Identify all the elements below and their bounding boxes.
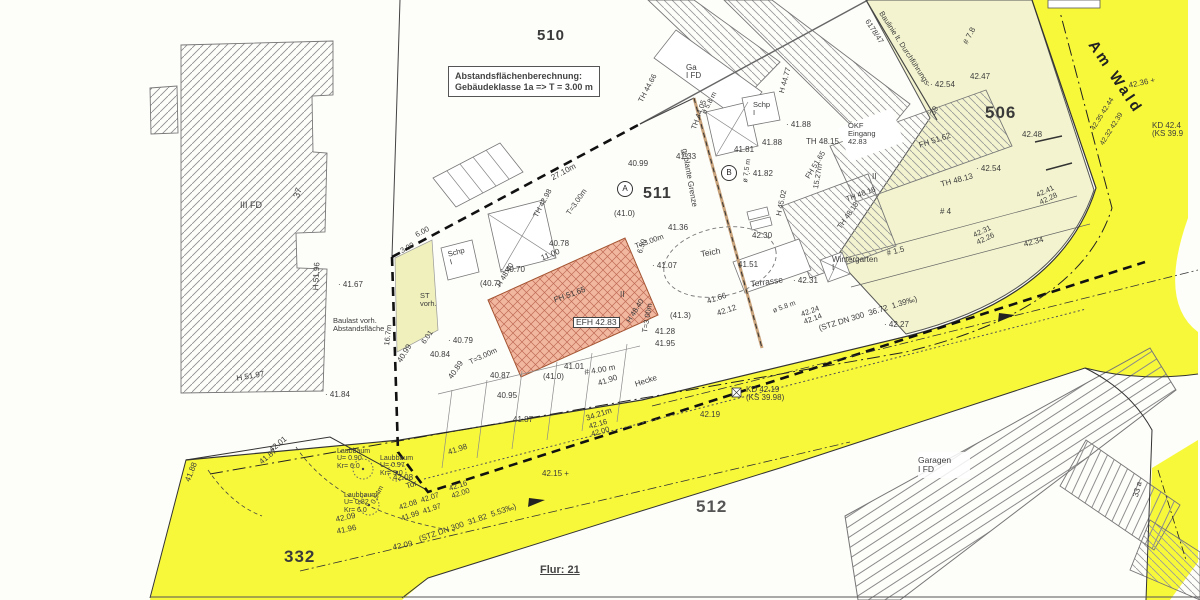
elev-4151: 41.51 [738, 261, 758, 269]
teich-label: Teich [700, 247, 721, 259]
elev-4215: 42.15 + [542, 470, 569, 478]
height-h5197: H 51.97 [236, 370, 265, 383]
elev-4188-b: 41.88 [762, 139, 782, 147]
elev-4182: · 41.82 [748, 170, 773, 178]
house-number-39: 39 [929, 105, 941, 117]
elev-410-paren-b: (41.0) [543, 373, 564, 381]
height-th4466: TH 44.66 [637, 73, 658, 104]
elev-413-paren: (41.3) [670, 312, 691, 320]
tree-laubbaum-2: Laubbaum U= 0.97 Kr= 5.0 [380, 455, 413, 477]
dim-78: # 7.8 [962, 26, 978, 46]
elev-4209-b: 42.09 [392, 540, 413, 552]
elev-4128: 41.28 [655, 328, 675, 336]
height-th4298: TH 42.98 [532, 188, 553, 219]
elev-4107: · 41.07 [652, 262, 677, 270]
dim-167m: 16.7m [383, 324, 393, 346]
elev-pair-4231-4226: 42.31 42.26 [972, 224, 996, 246]
building-schp-left: Schp I [447, 247, 468, 267]
elev-4230: 42.30 [752, 232, 772, 240]
dim-2710m: 27.10m [550, 162, 578, 182]
elev-4136: 41.36 [668, 224, 688, 232]
manhole-kd4219: KD 42.19 (KS 39.98) [746, 386, 784, 403]
elev-pair-4216-a: 42.16 42.00 [448, 479, 471, 500]
baulast-note: Baulast vorh. Abstandsfläche [333, 317, 384, 333]
elev-410-paren-a: (41.0) [614, 210, 635, 218]
house-number-37: 37 [292, 187, 304, 200]
building-ga-fd: Ga I FD [686, 64, 701, 81]
height-h4840-a: H 48.40 [495, 262, 516, 288]
elev-4188-c: 41.88 [184, 461, 199, 483]
height-h5196: H 51.96 [312, 262, 322, 290]
dim-1100: 11.00 [540, 248, 561, 263]
elev-4254-a: · 42.54 [930, 81, 955, 89]
dim-300: 3.00 [399, 241, 416, 255]
elev-4196-a: 41.96 [336, 524, 357, 536]
elev-4184: · 41.84 [325, 391, 350, 399]
elev-4181: 41.81 [734, 146, 754, 154]
elev-4195: 41.95 [655, 340, 675, 348]
manhole-kd424: KD 42.4 (KS 39.9 [1152, 122, 1183, 139]
height-th4813: TH 48.13 [940, 172, 974, 189]
wintergarten-label: Wintergarten I [832, 256, 878, 273]
elev-4084: 40.84 [430, 351, 450, 359]
dim-t300-c: T=3.00m [468, 346, 498, 366]
elev-4234: 42.34 [1023, 236, 1045, 249]
height-th4818: TH 48.18 [836, 201, 860, 231]
dim-t300-a: T=3.00m [565, 188, 589, 217]
survey-labels-layer: III FD37H 51.96H 51.97· 41.67· 41.84Baul… [0, 0, 1200, 600]
height-fh5165-bldg: FH 51.65 [553, 286, 587, 305]
elev-4248: 42.48 [1022, 131, 1042, 139]
tree-laubbaum-3: Laubbaum U= 0.82 Kr= 6.0 [344, 492, 377, 514]
dia-58m-south: ø 5.8 m [772, 300, 797, 315]
elev-4101: 41.01 [564, 363, 584, 371]
elev-4099-left: 40.99 [396, 343, 414, 364]
house-number-4: # 4 [940, 208, 951, 216]
baulinie-label: Baulinie lt. Durchführungs- [877, 10, 932, 88]
elev-4190: 41.90 [597, 374, 619, 388]
elev-4187-b: 41.87 [258, 447, 279, 466]
hecke-label: Hecke [634, 374, 658, 389]
height-h4477: H 44.77 [778, 67, 792, 94]
elev-4089: 40.89 [447, 360, 465, 381]
elev-4167: · 41.67 [338, 281, 363, 289]
elev-pair-4216-b: 42.16 42.00 [588, 418, 610, 438]
elev-4095: 40.95 [497, 392, 517, 400]
height-th4816: TH 48.16 [845, 185, 877, 203]
dim-601: 6.01 [420, 329, 435, 345]
dia-75m: ø 7.5 m [742, 158, 753, 183]
dim-600: 6.00 [414, 225, 431, 239]
elev-4198: 41.98 [447, 443, 469, 457]
storeys-ii-right: II [872, 173, 876, 181]
dim-650: 6.50 [636, 238, 648, 254]
elev-4227: · 42.27 [884, 321, 909, 329]
elev-4166: 41.66 [706, 292, 728, 306]
elev-4231: · 42.31 [793, 277, 818, 285]
site-plan-canvas: Abstandsflächenberechnung: Gebäudeklasse… [0, 0, 1200, 600]
elev-4212: 42.12 [716, 304, 738, 318]
dim-t300-d: T=3.00m [641, 303, 654, 334]
efh-label: EFH 42.83 [573, 317, 620, 328]
height-h4502: H 45.02 [775, 189, 788, 216]
height-fh5162: FH 51.62 [918, 132, 952, 150]
elev-4254-b: · 42.54 [976, 165, 1001, 173]
elev-4188-a: · 41.88 [786, 121, 811, 129]
building-iii-fd: III FD [240, 201, 262, 210]
storeys-ii-efh: II [620, 291, 624, 299]
terrasse-label: Terrasse [750, 275, 784, 288]
okf-eingang: ÖKF Eingang 42.83 [848, 122, 876, 146]
elev-4078: 40.78 [549, 240, 569, 248]
elev-4079: · 40.79 [448, 337, 473, 345]
tree-laubbaum-1: Laubbaum U= 0.90 Kr= 6.0 [337, 448, 370, 470]
height-th4815: TH 48.15 [806, 138, 839, 146]
elev-4236: 42.36 + [1128, 76, 1156, 90]
st-vorh-note: ST vorh. [420, 292, 437, 308]
elev-pair-4241-4228: 42.41 42.28 [1035, 184, 1059, 206]
elev-4087: 40.87 [490, 372, 510, 380]
dim-15: # 1.5 [886, 245, 905, 258]
elev-4247: 42.47 [970, 73, 990, 81]
elev-4187-a: 41.87 [513, 416, 533, 424]
house-number-33a: 33 a [1132, 481, 1144, 498]
building-schp-top: Schp I [753, 101, 770, 117]
garagen-label: Garagen I FD [918, 456, 951, 474]
elev-4219: 42.19 [700, 411, 720, 419]
elev-4099-top: 40.99 [628, 160, 648, 168]
